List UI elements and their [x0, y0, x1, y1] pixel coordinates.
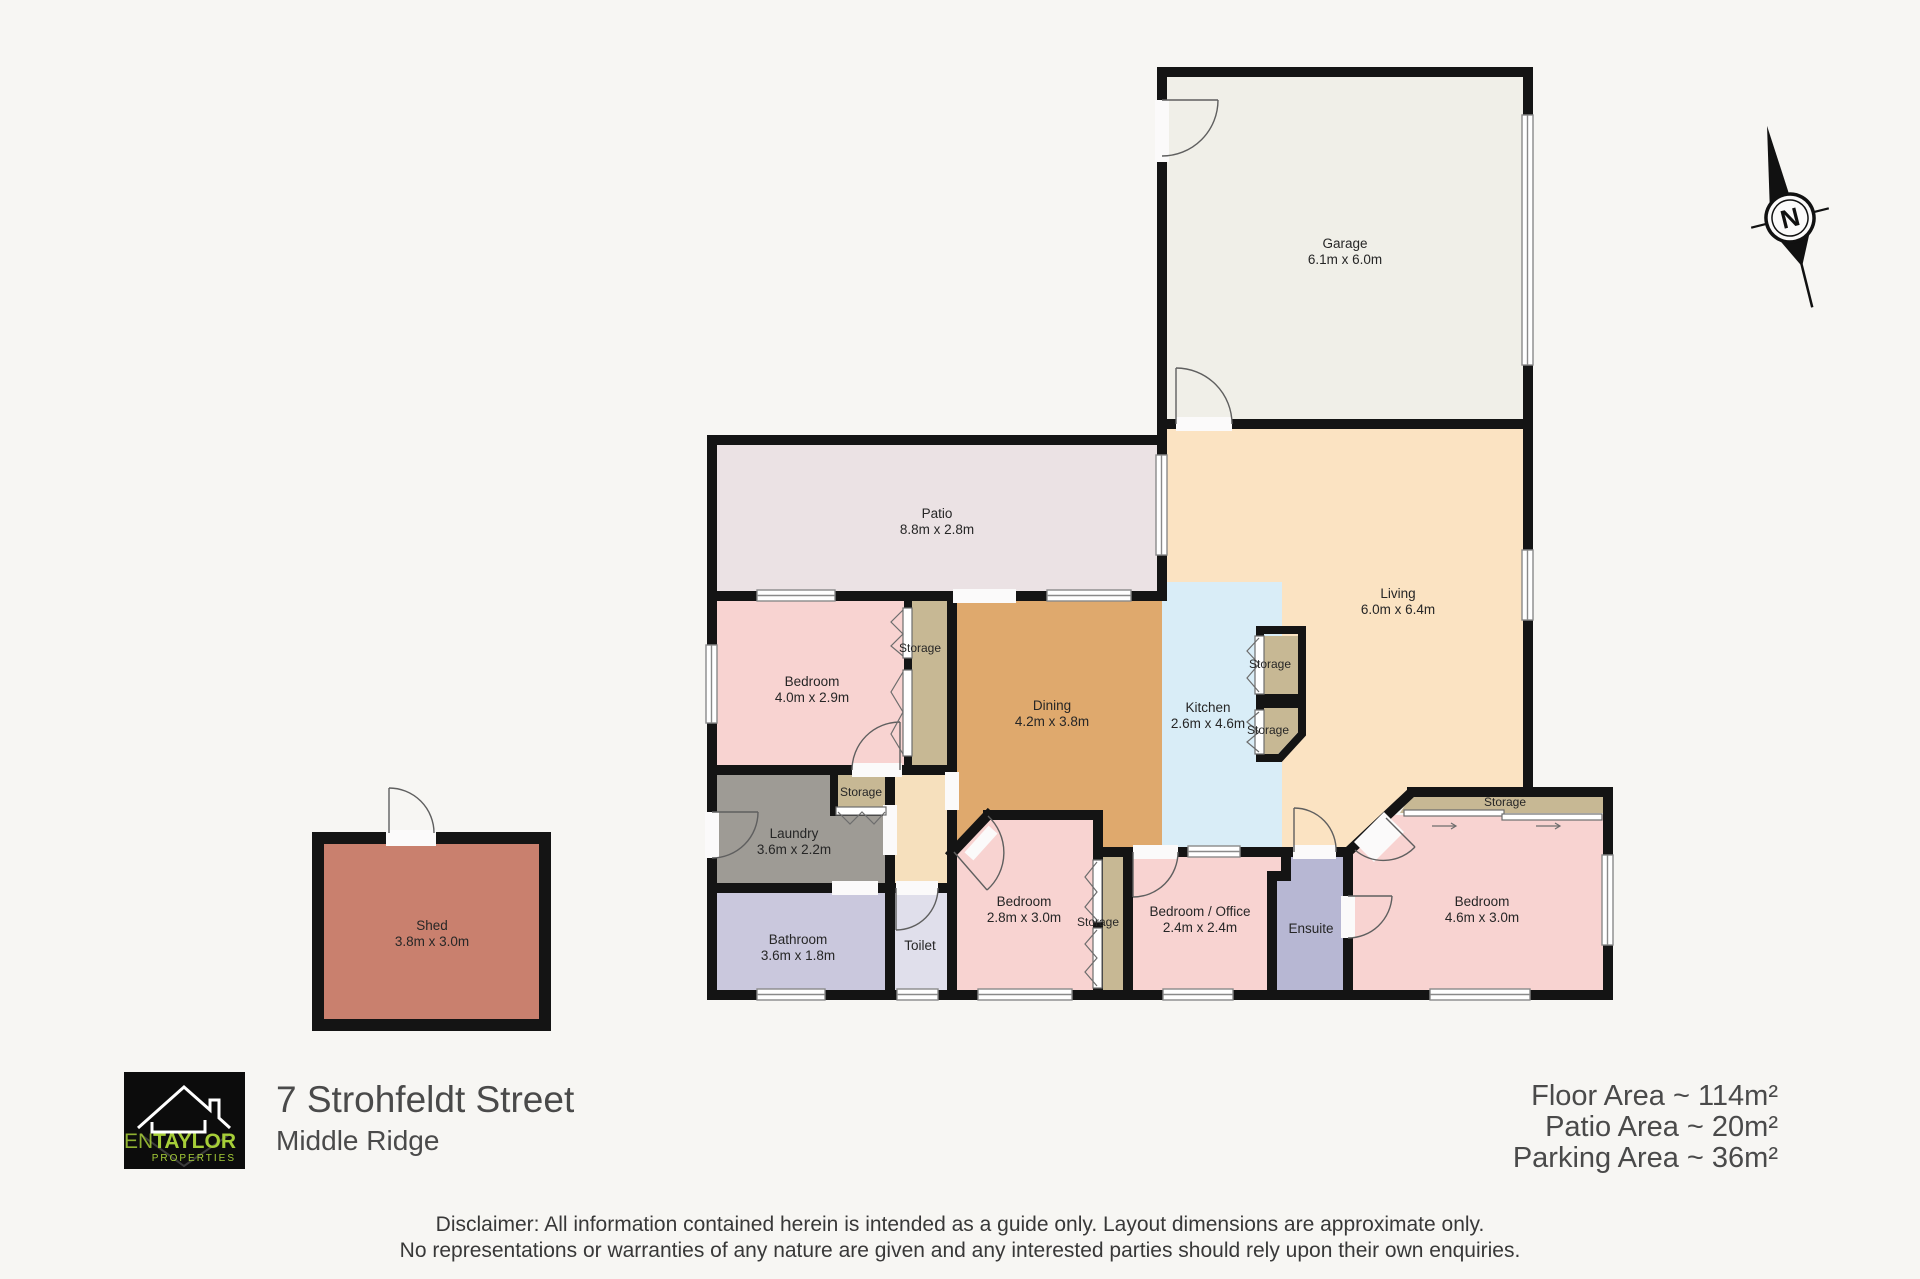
- room-fills: [318, 72, 1608, 1025]
- label-kitchen: Kitchen: [1185, 700, 1230, 715]
- label-garage-dims: 6.1m x 6.0m: [1308, 252, 1382, 267]
- window-bedroom-mid-south: [978, 989, 1072, 1000]
- agency-logo: JENTAYLOR PROPERTIES: [124, 1072, 245, 1169]
- property-address: 7 Strohfeldt Street Middle Ridge: [276, 1079, 574, 1157]
- opening-hall-dining: [945, 772, 959, 810]
- door-shed: [389, 788, 434, 833]
- compass: N: [1728, 116, 1851, 317]
- address-street: 7 Strohfeldt Street: [276, 1079, 574, 1121]
- hallway-floor: [890, 770, 952, 888]
- opening-bedroom-top-door: [852, 763, 902, 777]
- label-bedroom-top: Bedroom: [785, 674, 840, 689]
- compass-needle-icon: [1751, 125, 1790, 203]
- label-garage: Garage: [1322, 236, 1367, 251]
- window-dining-north: [1047, 590, 1131, 601]
- disclaimer-line2: No representations or warranties of any …: [0, 1238, 1920, 1264]
- floorplan-page: Garage 6.1m x 6.0m Patio 8.8m x 2.8m Liv…: [0, 0, 1920, 1279]
- floor-area: Floor Area ~ 114m²: [1513, 1081, 1778, 1112]
- parking-area: Parking Area ~ 36m²: [1513, 1143, 1778, 1174]
- label-toilet: Toilet: [904, 938, 936, 953]
- label-shed: Shed: [416, 918, 448, 933]
- label-ensuite: Ensuite: [1288, 921, 1333, 936]
- label-storage-kitchen2: Storage: [1247, 723, 1289, 737]
- window-patio-living: [1156, 455, 1167, 555]
- opening-shed-door: [386, 830, 436, 846]
- label-storage-bedroom-right: Storage: [1484, 795, 1526, 809]
- label-storage-strip: Storage: [1077, 915, 1119, 929]
- label-living-dims: 6.0m x 6.4m: [1361, 602, 1435, 617]
- opening-toilet-door: [896, 881, 938, 895]
- label-bathroom: Bathroom: [769, 932, 828, 947]
- label-bedroom-office: Bedroom / Office: [1149, 904, 1250, 919]
- label-laundry-dims: 3.6m x 2.2m: [757, 842, 831, 857]
- address-suburb: Middle Ridge: [276, 1125, 574, 1157]
- logo-house-roof-icon: [138, 1087, 230, 1128]
- window-bedroom-right-south: [1430, 989, 1530, 1000]
- label-bathroom-dims: 3.6m x 1.8m: [761, 948, 835, 963]
- label-bedroom-mid-dims: 2.8m x 3.0m: [987, 910, 1061, 925]
- disclaimer: Disclaimer: All information contained he…: [0, 1212, 1920, 1264]
- label-dining: Dining: [1033, 698, 1071, 713]
- label-patio-dims: 8.8m x 2.8m: [900, 522, 974, 537]
- disclaimer-line1: Disclaimer: All information contained he…: [0, 1212, 1920, 1238]
- logo-brand-text: JENTAYLOR: [124, 1130, 236, 1153]
- label-bedroom-right-dims: 4.6m x 3.0m: [1445, 910, 1519, 925]
- label-storage-kitchen1: Storage: [1249, 657, 1291, 671]
- label-living: Living: [1380, 586, 1415, 601]
- window-office-north: [1188, 846, 1240, 857]
- opening-laundry-ext-door: [705, 812, 719, 858]
- label-dining-dims: 4.2m x 3.8m: [1015, 714, 1089, 729]
- label-bedroom-office-dims: 2.4m x 2.4m: [1163, 920, 1237, 935]
- opening-ensuite-bedroom: [1341, 896, 1355, 938]
- window-bedroom-top-north: [757, 590, 835, 601]
- area-summary: Floor Area ~ 114m² Patio Area ~ 20m² Par…: [1513, 1081, 1778, 1174]
- window-bedroom-right-east: [1602, 855, 1613, 945]
- label-bedroom-mid: Bedroom: [997, 894, 1052, 909]
- label-patio: Patio: [922, 506, 953, 521]
- patio-area: Patio Area ~ 20m²: [1513, 1112, 1778, 1143]
- agency-logo-icon: JENTAYLOR PROPERTIES: [124, 1072, 245, 1169]
- window-office-south: [1163, 989, 1233, 1000]
- label-storage-wardrobe-top: Storage: [899, 641, 941, 655]
- logo-sub-text: PROPERTIES: [152, 1153, 236, 1164]
- opening-ensuite-door: [1293, 845, 1336, 859]
- label-storage-laundry: Storage: [840, 785, 882, 799]
- opening-laundry-bathroom: [832, 881, 878, 895]
- wardrobe-bedroom-top-floor: [908, 596, 952, 770]
- label-bedroom-right: Bedroom: [1455, 894, 1510, 909]
- window-living-right: [1522, 550, 1533, 620]
- label-kitchen-dims: 2.6m x 4.6m: [1171, 716, 1245, 731]
- opening-office-door: [1133, 845, 1178, 859]
- opening-garage-entry: [1155, 100, 1169, 162]
- opening-garage-living: [1176, 417, 1232, 431]
- label-shed-dims: 3.8m x 3.0m: [395, 934, 469, 949]
- window-bedroom-top-west: [706, 645, 717, 723]
- window-garage-right: [1522, 115, 1533, 365]
- window-toilet-south: [897, 989, 938, 1000]
- window-bathroom-south: [757, 989, 825, 1000]
- label-laundry: Laundry: [770, 826, 819, 841]
- label-bedroom-top-dims: 4.0m x 2.9m: [775, 690, 849, 705]
- opening-patio-dining: [953, 589, 1016, 603]
